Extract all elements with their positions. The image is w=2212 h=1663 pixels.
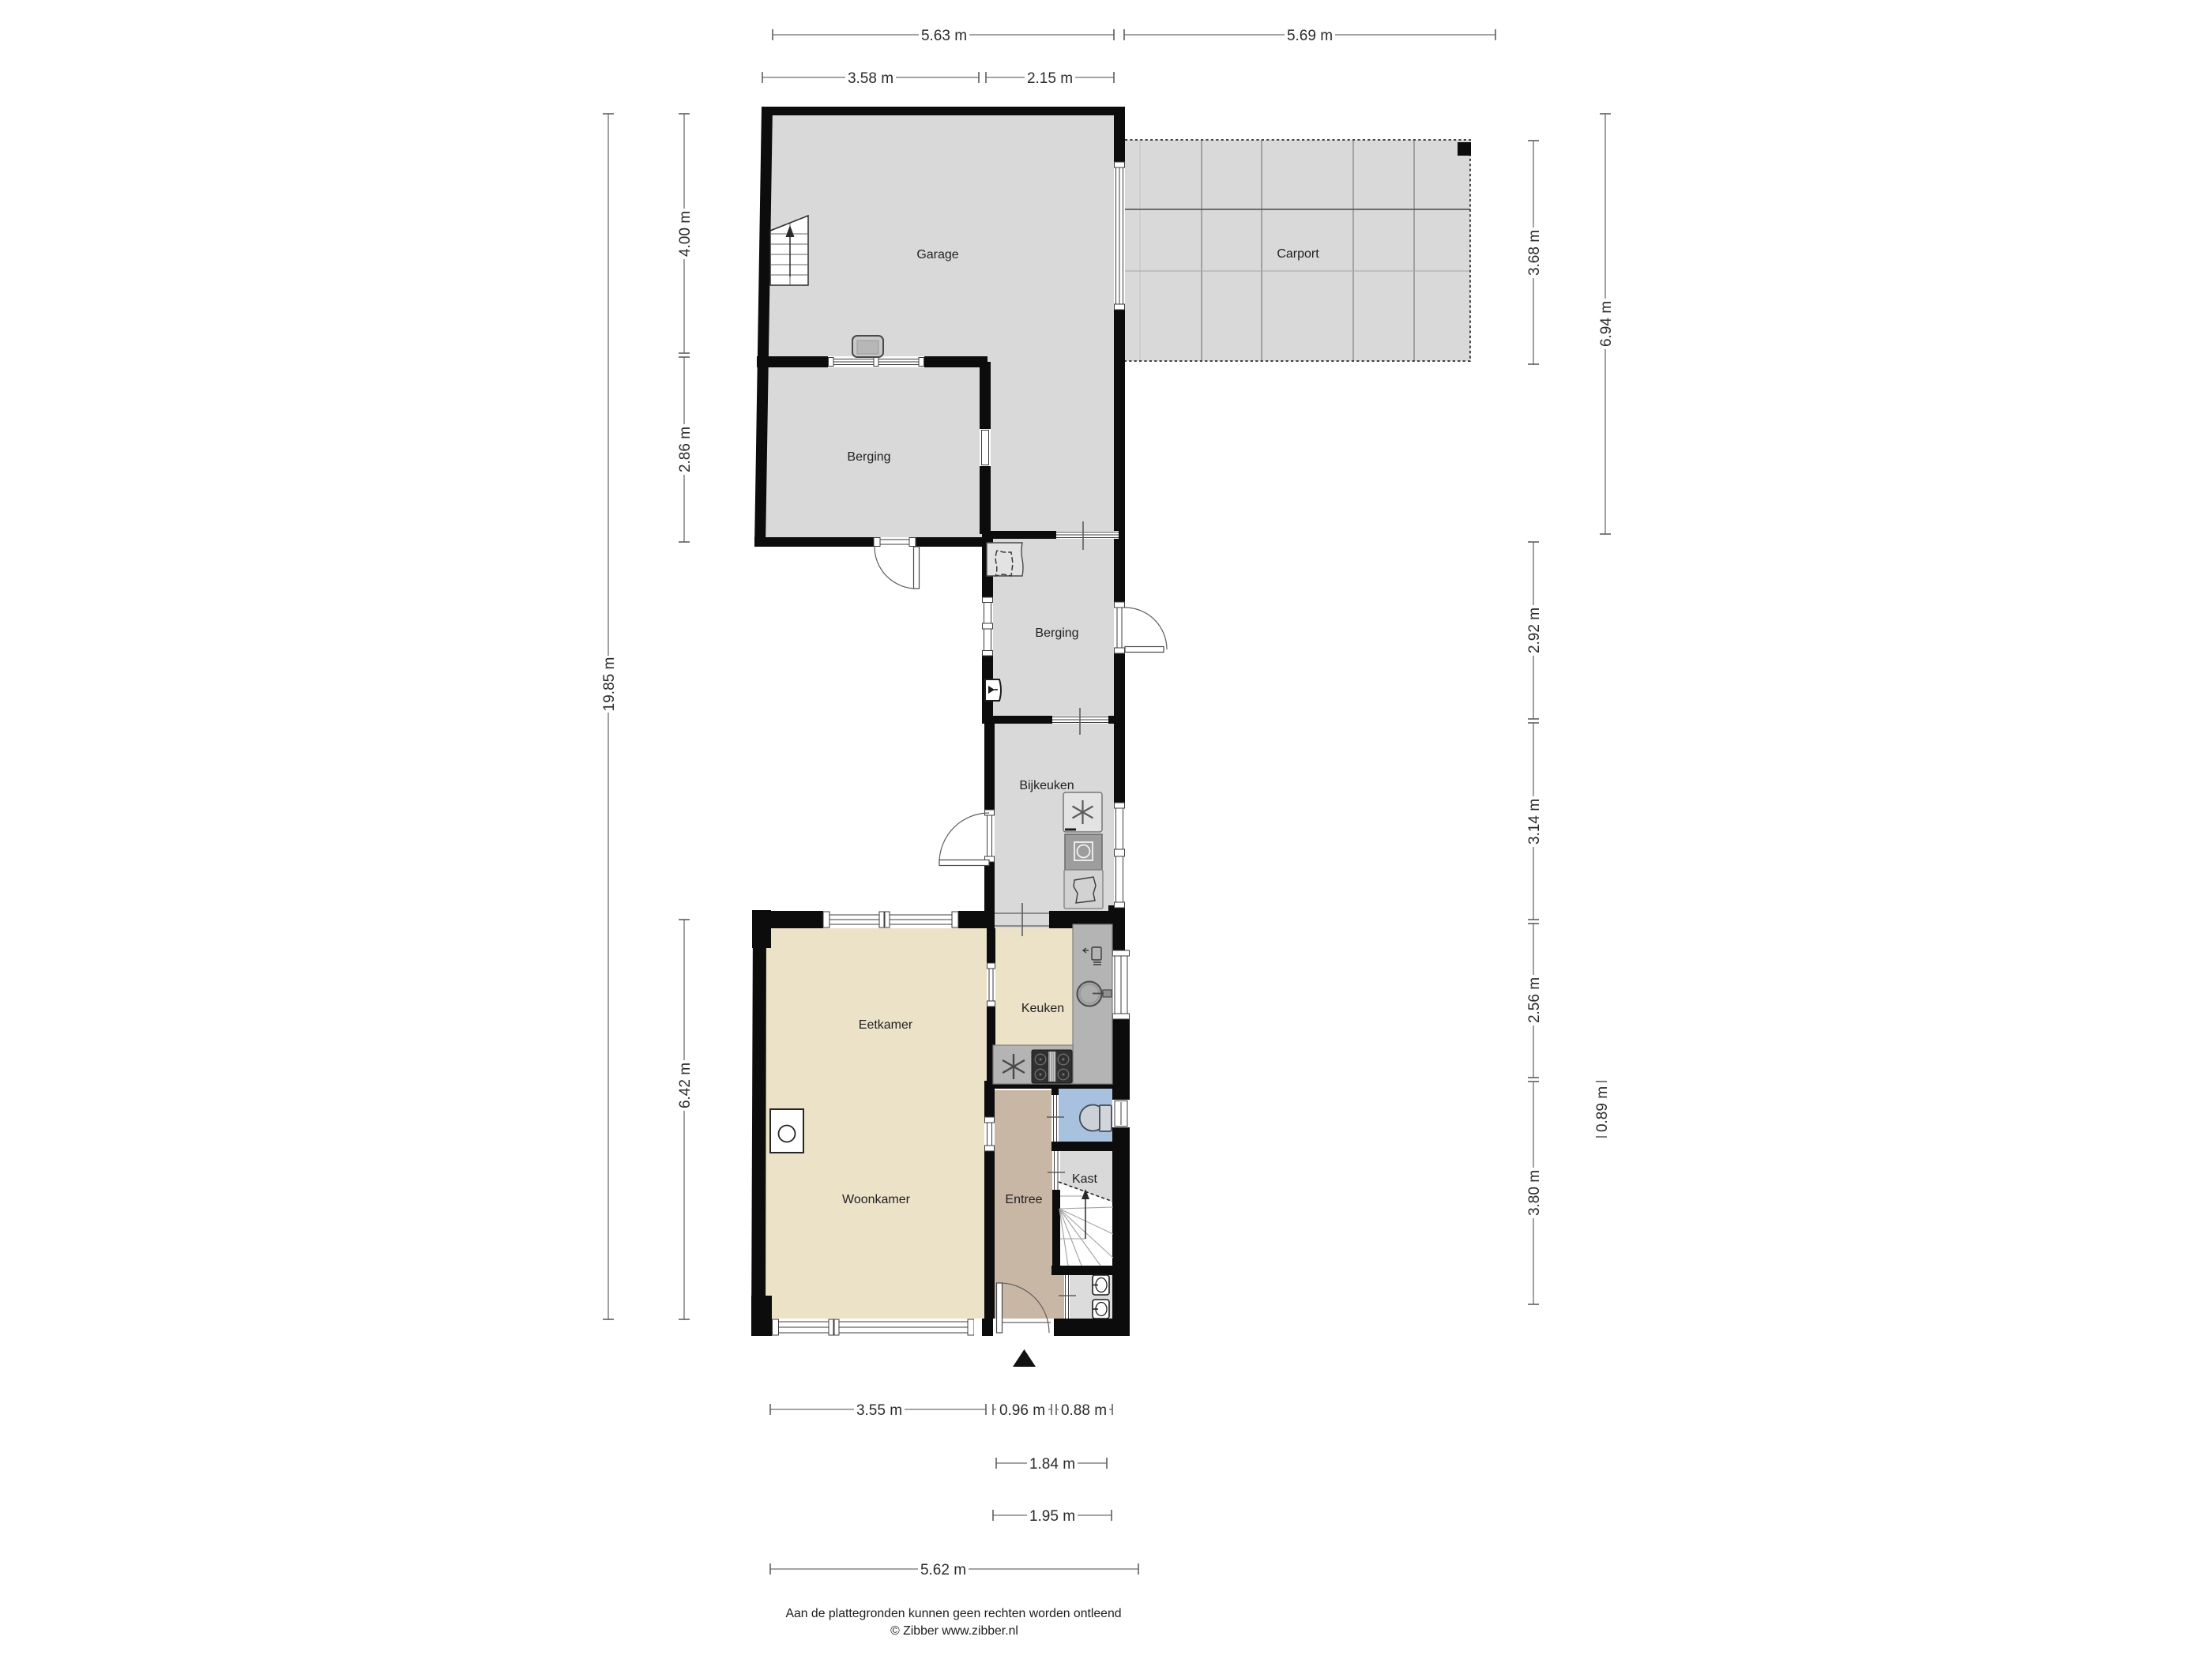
svg-text:5.63 m: 5.63 m [921, 28, 967, 44]
svg-text:0.96 m: 0.96 m [999, 1402, 1045, 1419]
svg-text:Eetkamer: Eetkamer [859, 1018, 913, 1032]
svg-text:5.62 m: 5.62 m [920, 1562, 966, 1578]
svg-text:3.80 m: 3.80 m [1526, 1170, 1543, 1216]
svg-text:Berging: Berging [1035, 626, 1078, 640]
svg-text:6.42 m: 6.42 m [677, 1063, 694, 1108]
svg-text:3.58 m: 3.58 m [848, 70, 893, 87]
svg-text:0.89 m: 0.89 m [1594, 1086, 1611, 1132]
svg-text:© Zibber www.zibber.nl: © Zibber www.zibber.nl [890, 1624, 1018, 1638]
svg-text:Berging: Berging [847, 450, 890, 464]
svg-text:5.69 m: 5.69 m [1287, 28, 1333, 44]
svg-text:2.92 m: 2.92 m [1526, 608, 1543, 653]
svg-text:1.84 m: 1.84 m [1029, 1456, 1075, 1473]
svg-text:3.55 m: 3.55 m [856, 1402, 902, 1419]
svg-text:19.85 m: 19.85 m [601, 657, 618, 712]
svg-text:Aan de plattegronden kunnen ge: Aan de plattegronden kunnen geen rechten… [785, 1607, 1121, 1620]
svg-text:Keuken: Keuken [1021, 1002, 1064, 1015]
svg-text:Kast: Kast [1072, 1172, 1098, 1186]
svg-text:2.56 m: 2.56 m [1526, 977, 1543, 1023]
svg-text:Woonkamer: Woonkamer [842, 1193, 911, 1206]
svg-text:Bijkeuken: Bijkeuken [1019, 779, 1074, 792]
svg-text:Carport: Carport [1277, 247, 1319, 261]
svg-text:3.14 m: 3.14 m [1526, 799, 1543, 845]
svg-text:1.95 m: 1.95 m [1029, 1508, 1075, 1525]
svg-text:3.68 m: 3.68 m [1526, 230, 1543, 276]
svg-text:2.15 m: 2.15 m [1027, 70, 1073, 87]
svg-text:6.94 m: 6.94 m [1598, 301, 1615, 347]
svg-text:2.86 m: 2.86 m [677, 427, 694, 472]
svg-text:0.88 m: 0.88 m [1061, 1402, 1107, 1419]
svg-text:Entree: Entree [1005, 1193, 1042, 1206]
svg-text:Garage: Garage [916, 248, 958, 261]
svg-text:4.00 m: 4.00 m [677, 211, 694, 257]
